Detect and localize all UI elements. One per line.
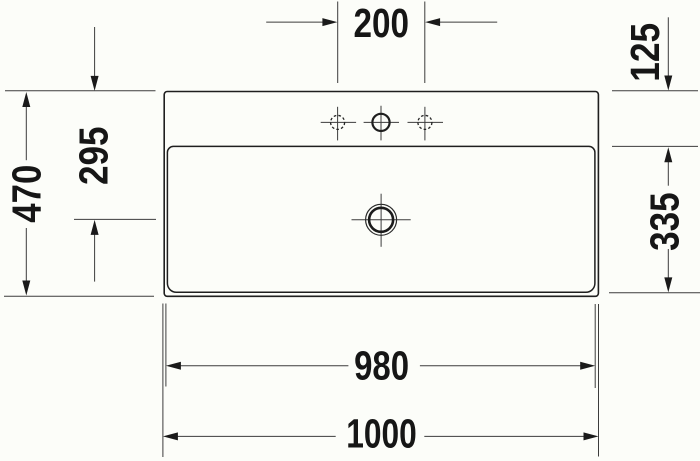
- svg-text:125: 125: [622, 23, 668, 82]
- svg-text:295: 295: [71, 127, 117, 186]
- svg-text:335: 335: [642, 192, 688, 251]
- svg-text:200: 200: [354, 0, 410, 46]
- svg-text:1000: 1000: [346, 411, 417, 457]
- svg-text:470: 470: [3, 165, 49, 223]
- svg-text:980: 980: [354, 342, 409, 388]
